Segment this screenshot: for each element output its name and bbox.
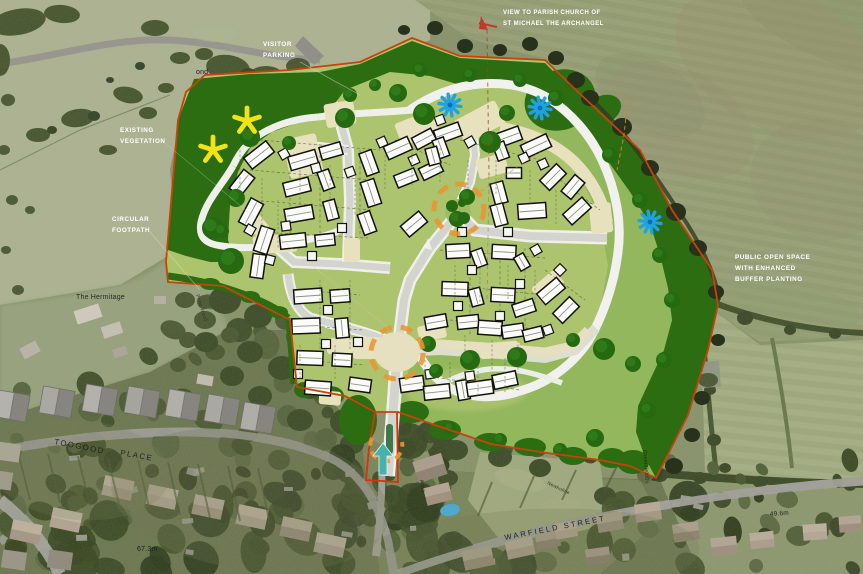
svg-text:PUBLIC OPEN SPACE: PUBLIC OPEN SPACE bbox=[735, 254, 810, 261]
svg-text:PARKING: PARKING bbox=[263, 52, 295, 59]
svg-text:VISITOR: VISITOR bbox=[263, 41, 292, 48]
svg-text:49.6m: 49.6m bbox=[770, 510, 790, 518]
svg-text:ST MICHAEL THE ARCHANGEL: ST MICHAEL THE ARCHANGEL bbox=[503, 21, 604, 27]
svg-text:FOOTPATH: FOOTPATH bbox=[112, 227, 150, 234]
svg-text:The Hermitage: The Hermitage bbox=[76, 294, 125, 301]
svg-text:VIEW TO PARISH CHURCH OF: VIEW TO PARISH CHURCH OF bbox=[503, 10, 601, 16]
svg-text:67.3m: 67.3m bbox=[137, 546, 157, 553]
svg-text:EXISTING: EXISTING bbox=[120, 127, 154, 134]
svg-text:CIRCULAR: CIRCULAR bbox=[112, 216, 149, 223]
svg-text:VEGETATION: VEGETATION bbox=[120, 138, 166, 145]
svg-text:ond: ond bbox=[196, 69, 208, 76]
svg-text:BUFFER PLANTING: BUFFER PLANTING bbox=[735, 276, 803, 283]
svg-text:WITH ENHANCED: WITH ENHANCED bbox=[735, 265, 796, 272]
